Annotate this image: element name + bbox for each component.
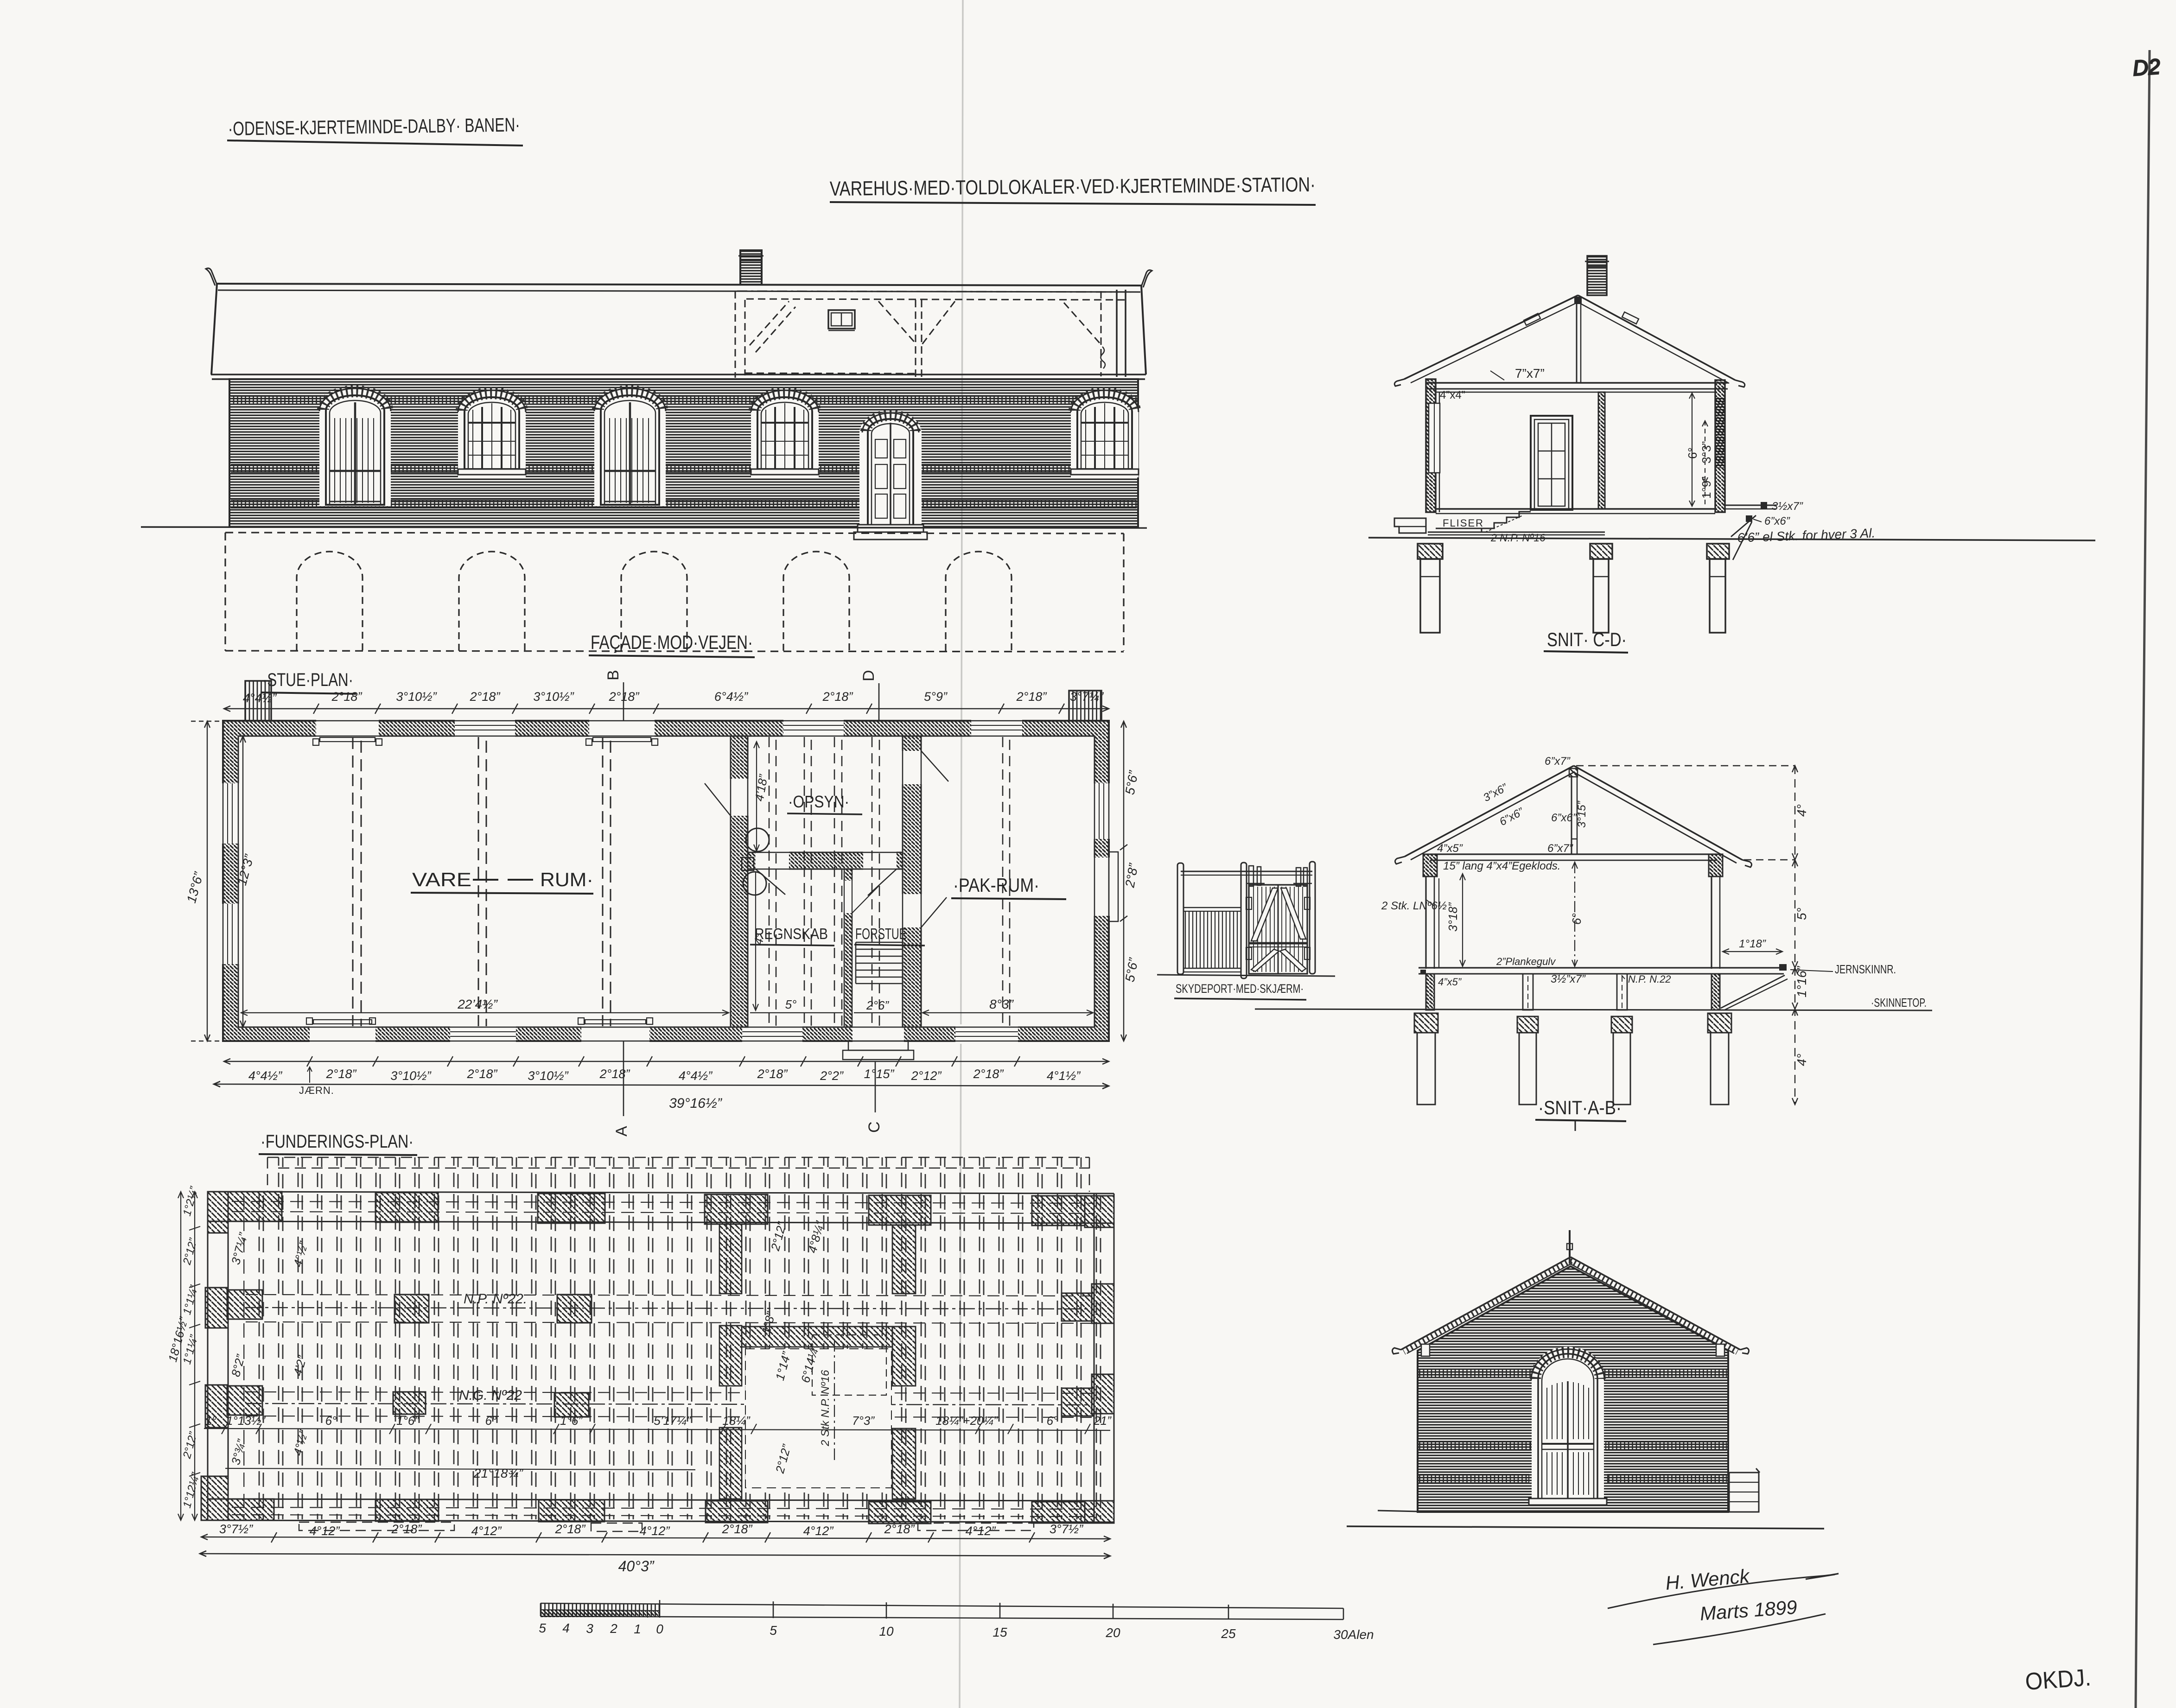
svg-text:4°: 4° — [751, 932, 767, 946]
svg-text:3°7¼”: 3°7¼” — [1070, 690, 1104, 704]
svg-text:1°15”: 1°15” — [864, 1067, 895, 1081]
svg-text:D2: D2 — [2132, 54, 2161, 80]
svg-text:Marts 1899: Marts 1899 — [1699, 1596, 1798, 1625]
svg-text:20: 20 — [1105, 1625, 1120, 1640]
svg-text:0: 0 — [656, 1622, 663, 1636]
svg-text:4’18”: 4’18” — [752, 773, 770, 802]
svg-text:4°4½”: 4°4½” — [679, 1069, 713, 1083]
svg-text:5: 5 — [770, 1623, 777, 1638]
svg-text:5°9”: 5°9” — [924, 690, 948, 704]
svg-text:RUM·: RUM· — [540, 869, 593, 890]
svg-text:2°18”: 2°18” — [467, 1067, 498, 1081]
svg-text:4°4½”: 4°4½” — [248, 1069, 282, 1083]
svg-text:2°18”: 2°18” — [822, 690, 853, 704]
svg-text:2°6”: 2°6” — [866, 998, 889, 1012]
svg-text:A: A — [613, 1126, 630, 1137]
svg-text:2°8”: 2°8” — [1122, 862, 1141, 889]
svg-text:FAÇADE·MOD·VEJEN·: FAÇADE·MOD·VEJEN· — [591, 631, 753, 653]
svg-text:6”x7”: 6”x7” — [1547, 842, 1573, 855]
svg-text:5°6”: 5°6” — [1122, 956, 1141, 983]
svg-text:4°: 4° — [1794, 1054, 1809, 1066]
svg-text:3½”x7”: 3½”x7” — [1551, 973, 1586, 985]
svg-text:1°12¼”: 1°12¼” — [181, 1471, 202, 1510]
svg-text:6”x7”: 6”x7” — [1545, 755, 1571, 768]
svg-text:21”: 21” — [1093, 1414, 1112, 1428]
svg-text:2°18”: 2°18” — [470, 690, 501, 704]
svg-text:1°16”: 1°16” — [1794, 965, 1809, 997]
svg-text:5°: 5° — [1794, 908, 1809, 920]
svg-text:4°12”: 4°12” — [640, 1524, 670, 1538]
svg-text:N.G. Nº22: N.G. Nº22 — [459, 1388, 522, 1403]
svg-text:2 Stk N.P. Nº16: 2 Stk N.P. Nº16 — [819, 1370, 832, 1447]
svg-text:5°6”: 5°6” — [1122, 769, 1141, 796]
svg-text:3”x6”: 3”x6” — [1481, 781, 1510, 804]
svg-text:3: 3 — [586, 1621, 593, 1636]
svg-text:1°18”: 1°18” — [1739, 938, 1766, 950]
svg-text:6°4½”: 6°4½” — [714, 690, 748, 704]
svg-text:3°3”: 3°3” — [1699, 441, 1713, 464]
svg-text:4°4½”: 4°4½” — [243, 691, 277, 705]
svg-text:4”x5”: 4”x5” — [1438, 976, 1462, 988]
svg-text:15: 15 — [993, 1625, 1007, 1639]
svg-text:8°3”: 8°3” — [989, 997, 1014, 1011]
svg-text:10: 10 — [879, 1624, 894, 1638]
svg-text:3°18”: 3°18” — [1446, 902, 1460, 932]
svg-text:C: C — [865, 1121, 883, 1133]
svg-text:2°18”: 2°18” — [599, 1067, 630, 1081]
svg-text:2”Plankegulv: 2”Plankegulv — [1496, 956, 1556, 967]
svg-text:2°18”: 2°18” — [391, 1522, 422, 1536]
svg-text:D: D — [860, 670, 878, 681]
svg-text:7°3”: 7°3” — [852, 1414, 875, 1428]
svg-text:·SKINNETOP.: ·SKINNETOP. — [1871, 996, 1927, 1010]
svg-text:JÆRN.: JÆRN. — [299, 1085, 334, 1096]
svg-text:3°10½”: 3°10½” — [528, 1069, 568, 1083]
svg-text:2°18”: 2°18” — [555, 1522, 586, 1536]
svg-text:2°12”: 2°12” — [911, 1069, 942, 1083]
svg-text:6’6” el Stk. for hver 3 Al.: 6’6” el Stk. for hver 3 Al. — [1737, 526, 1876, 545]
svg-text:30Alen: 30Alen — [1333, 1627, 1374, 1642]
svg-text:VARE: VARE — [412, 869, 471, 890]
svg-text:·SNIT·A-B·: ·SNIT·A-B· — [1538, 1097, 1622, 1118]
svg-text:·STUE·PLAN·: ·STUE·PLAN· — [262, 670, 353, 690]
svg-text:21°18¾”: 21°18¾” — [473, 1466, 524, 1480]
svg-text:3°10½”: 3°10½” — [533, 690, 574, 704]
svg-text:1°6”: 1°6” — [560, 1414, 583, 1428]
svg-text:SNIT· C-D·: SNIT· C-D· — [1547, 629, 1627, 650]
svg-text:5’17¼”: 5’17¼” — [654, 1414, 691, 1428]
svg-text:N.P. Nº22.: N.P. Nº22. — [464, 1291, 527, 1307]
svg-text:4°1½”: 4°1½” — [1047, 1069, 1081, 1083]
svg-text:13°6”: 13°6” — [184, 870, 206, 905]
svg-text:1°13½”: 1°13½” — [226, 1414, 266, 1428]
svg-text:·OPSYN·: ·OPSYN· — [788, 792, 849, 811]
svg-text:3°10½”: 3°10½” — [390, 1069, 431, 1083]
svg-text:6”x6”: 6”x6” — [1497, 805, 1526, 828]
svg-text:FORSTUE: FORSTUE — [855, 925, 906, 942]
svg-text:2°18”: 2°18” — [757, 1067, 788, 1081]
svg-text:OKDJ.: OKDJ. — [2024, 1664, 2092, 1695]
svg-text:6°: 6° — [1047, 1414, 1058, 1428]
svg-text:3°15”: 3°15” — [1576, 800, 1588, 828]
svg-text:40°3”: 40°3” — [618, 1558, 655, 1575]
svg-text:6°: 6° — [1686, 447, 1699, 459]
svg-text:18¼”+20¼”: 18¼”+20¼” — [935, 1414, 998, 1428]
svg-text:4°12”: 4°12” — [310, 1524, 340, 1538]
svg-text:2°18”: 2°18” — [884, 1522, 915, 1536]
svg-text:2°18”: 2°18” — [973, 1067, 1004, 1081]
svg-text:4°12”: 4°12” — [803, 1524, 834, 1538]
svg-text:3½x7”: 3½x7” — [1772, 500, 1803, 513]
svg-text:1°2¼”: 1°2¼” — [181, 1185, 201, 1217]
svg-text:1°6”: 1°6” — [396, 1414, 419, 1428]
svg-text:VAREHUS·MED·TOLDLOKALER·VED·KJ: VAREHUS·MED·TOLDLOKALER·VED·KJERTEMINDE·… — [830, 173, 1316, 200]
svg-text:5: 5 — [539, 1621, 546, 1635]
svg-text:JERNSKINNR.: JERNSKINNR. — [1835, 962, 1896, 976]
svg-text:2°18”: 2°18” — [331, 690, 363, 704]
svg-text:B: B — [604, 670, 622, 680]
svg-text:2°12”: 2°12” — [180, 1237, 200, 1267]
svg-text:4°12”: 4°12” — [966, 1524, 996, 1538]
svg-text:H. Wenck: H. Wenck — [1665, 1565, 1751, 1594]
svg-text:4°12”: 4°12” — [471, 1524, 502, 1538]
svg-text:22’4½”: 22’4½” — [457, 997, 498, 1011]
svg-text:1: 1 — [634, 1622, 641, 1636]
svg-text:2°18”: 2°18” — [1016, 690, 1047, 704]
svg-text:18¼”: 18¼” — [722, 1414, 751, 1428]
svg-text:2: 2 — [610, 1621, 617, 1636]
svg-text:FLISER: FLISER — [1443, 517, 1484, 529]
svg-text:6°: 6° — [485, 1414, 497, 1428]
svg-text:1°9”: 1°9” — [1699, 476, 1713, 499]
svg-text:2°18”: 2°18” — [722, 1522, 753, 1536]
svg-text:3°7½”: 3°7½” — [1050, 1522, 1083, 1536]
svg-text:N.P. N.22: N.P. N.22 — [1628, 973, 1671, 985]
svg-text:·FUNDERINGS-PLAN·: ·FUNDERINGS-PLAN· — [261, 1131, 414, 1152]
svg-text:1°1¼”: 1°1¼” — [181, 1283, 201, 1316]
svg-text:2 Stk. LNº6½: 2 Stk. LNº6½ — [1381, 900, 1447, 912]
svg-text:25: 25 — [1221, 1626, 1236, 1641]
svg-text:6”x6”: 6”x6” — [1551, 812, 1577, 824]
svg-text:3°7½”: 3°7½” — [219, 1522, 253, 1536]
svg-text:6”x6”: 6”x6” — [1764, 515, 1790, 527]
svg-text:4: 4 — [562, 1621, 570, 1635]
svg-text:7”x7”: 7”x7” — [1515, 366, 1545, 381]
svg-text:2°18”: 2°18” — [326, 1067, 357, 1081]
svg-text:SKYDEPORT·MED·SKJÆRM·: SKYDEPORT·MED·SKJÆRM· — [1176, 982, 1304, 996]
svg-text:4”x5”: 4”x5” — [1437, 842, 1463, 855]
svg-text:39°16½”: 39°16½” — [669, 1096, 723, 1111]
svg-text:2°12”: 2°12” — [180, 1430, 200, 1460]
svg-text:·PAK-RUM·: ·PAK-RUM· — [953, 874, 1039, 896]
svg-text:4”x4”: 4”x4” — [1440, 389, 1465, 401]
svg-text:1°: 1° — [205, 1414, 217, 1428]
svg-text:2°2”: 2°2” — [820, 1069, 844, 1083]
svg-text:4°: 4° — [1794, 804, 1809, 817]
svg-text:6°: 6° — [325, 1414, 337, 1428]
svg-text:15” lang 4”x4”Egeklods.: 15” lang 4”x4”Egeklods. — [1443, 860, 1560, 872]
svg-text:·ODENSE-KJERTEMINDE-DALBY· BAN: ·ODENSE-KJERTEMINDE-DALBY· BANEN· — [228, 114, 520, 140]
svg-text:3°10½”: 3°10½” — [396, 690, 437, 704]
svg-text:5°: 5° — [785, 997, 797, 1011]
svg-text:6°: 6° — [1570, 913, 1584, 925]
